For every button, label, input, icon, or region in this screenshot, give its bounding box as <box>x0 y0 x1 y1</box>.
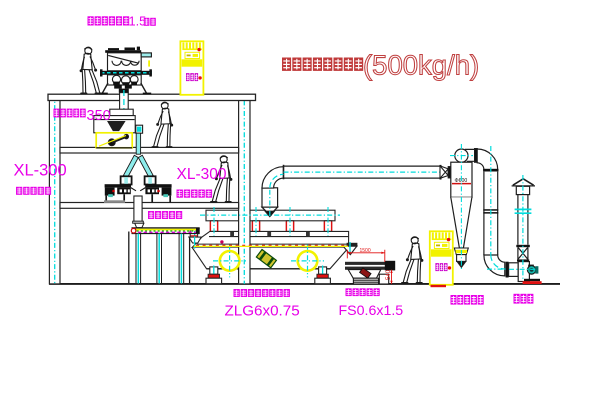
svg-text:XL-300: XL-300 <box>177 166 227 183</box>
svg-text:540: 540 <box>386 269 392 280</box>
svg-text:FS0.6x1.5: FS0.6x1.5 <box>339 303 404 319</box>
svg-text:ZLG6x0.75: ZLG6x0.75 <box>225 303 300 320</box>
svg-text:XL-300: XL-300 <box>14 162 67 180</box>
svg-text:1.5: 1.5 <box>129 14 147 29</box>
svg-text:1500: 1500 <box>360 248 371 254</box>
svg-text:350: 350 <box>87 108 111 124</box>
svg-text:(500kg/h): (500kg/h) <box>363 50 479 81</box>
